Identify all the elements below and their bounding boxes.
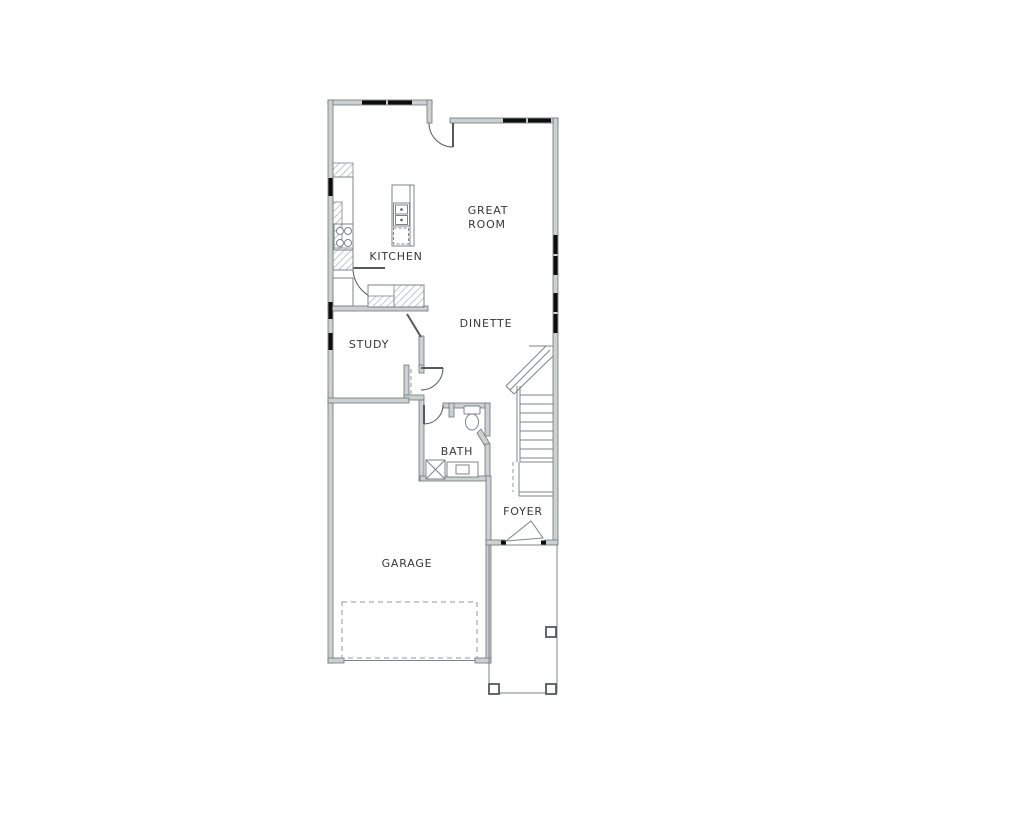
upper-cabinet — [333, 163, 353, 177]
study-label: STUDY — [349, 338, 389, 351]
patio-door — [429, 123, 453, 147]
floor-plan-drawing: GREAT ROOM KITCHEN DINETTE STUDY BATH FO… — [0, 0, 1024, 819]
porch-outline — [489, 545, 557, 693]
porch-post-bottom-left — [489, 684, 499, 694]
window-right-lower-b — [554, 314, 558, 333]
foyer-bottom-wall-right — [545, 540, 558, 545]
mechanical-chase-icon — [426, 460, 445, 479]
toilet-icon — [464, 406, 480, 430]
porch — [489, 545, 557, 694]
window-right-upper-a — [554, 235, 558, 254]
garage-door-dashed — [342, 602, 477, 658]
walls — [328, 100, 558, 663]
window-kitchen-left — [329, 178, 333, 196]
counter-hatch-b — [333, 248, 353, 270]
garage-top-wall — [328, 398, 409, 403]
porch-post-bottom-right — [546, 684, 556, 694]
window-top-right-a — [503, 119, 526, 123]
window-top-left-a — [362, 101, 386, 105]
garage-bottom-wall-left — [328, 658, 344, 663]
vanity-icon — [447, 462, 478, 477]
kitchen-island — [392, 185, 414, 246]
bath-door — [424, 405, 443, 424]
study-right-wall — [419, 336, 424, 367]
window-study-left-b — [329, 333, 333, 350]
garage-label: GARAGE — [382, 557, 433, 570]
toilet-alcove-stub — [449, 403, 454, 417]
bath-right-wall-upper — [485, 403, 490, 436]
window-study-left-a — [329, 302, 333, 319]
range-icon — [394, 203, 410, 226]
window-top-right-b — [528, 119, 551, 123]
window-right-upper-b — [554, 256, 558, 275]
winder-treads — [506, 346, 553, 394]
lower-cabinet — [333, 278, 353, 306]
kitchen-fixtures — [333, 163, 424, 307]
dinette-label: DINETTE — [460, 317, 513, 330]
great-room-label-line2: ROOM — [468, 218, 506, 231]
bottom-counter — [368, 285, 424, 307]
floor-plan-page: GREAT ROOM KITCHEN DINETTE STUDY BATH FO… — [0, 0, 1024, 819]
garage-features — [342, 602, 477, 661]
window-top-left-b — [388, 101, 412, 105]
great-room-label-line1: GREAT — [468, 204, 509, 217]
study-entry-door — [407, 314, 421, 337]
bath-right-wall-lower — [485, 444, 490, 476]
windows — [329, 101, 558, 351]
porch-post-right-mid — [546, 627, 556, 637]
front-door — [501, 521, 546, 545]
kitchen-label: KITCHEN — [369, 250, 422, 263]
window-right-lower-a — [554, 293, 558, 312]
bath-label: BATH — [441, 445, 473, 458]
foyer-label: FOYER — [503, 505, 543, 518]
top-wall-jog — [427, 100, 432, 123]
staircase — [506, 346, 553, 496]
